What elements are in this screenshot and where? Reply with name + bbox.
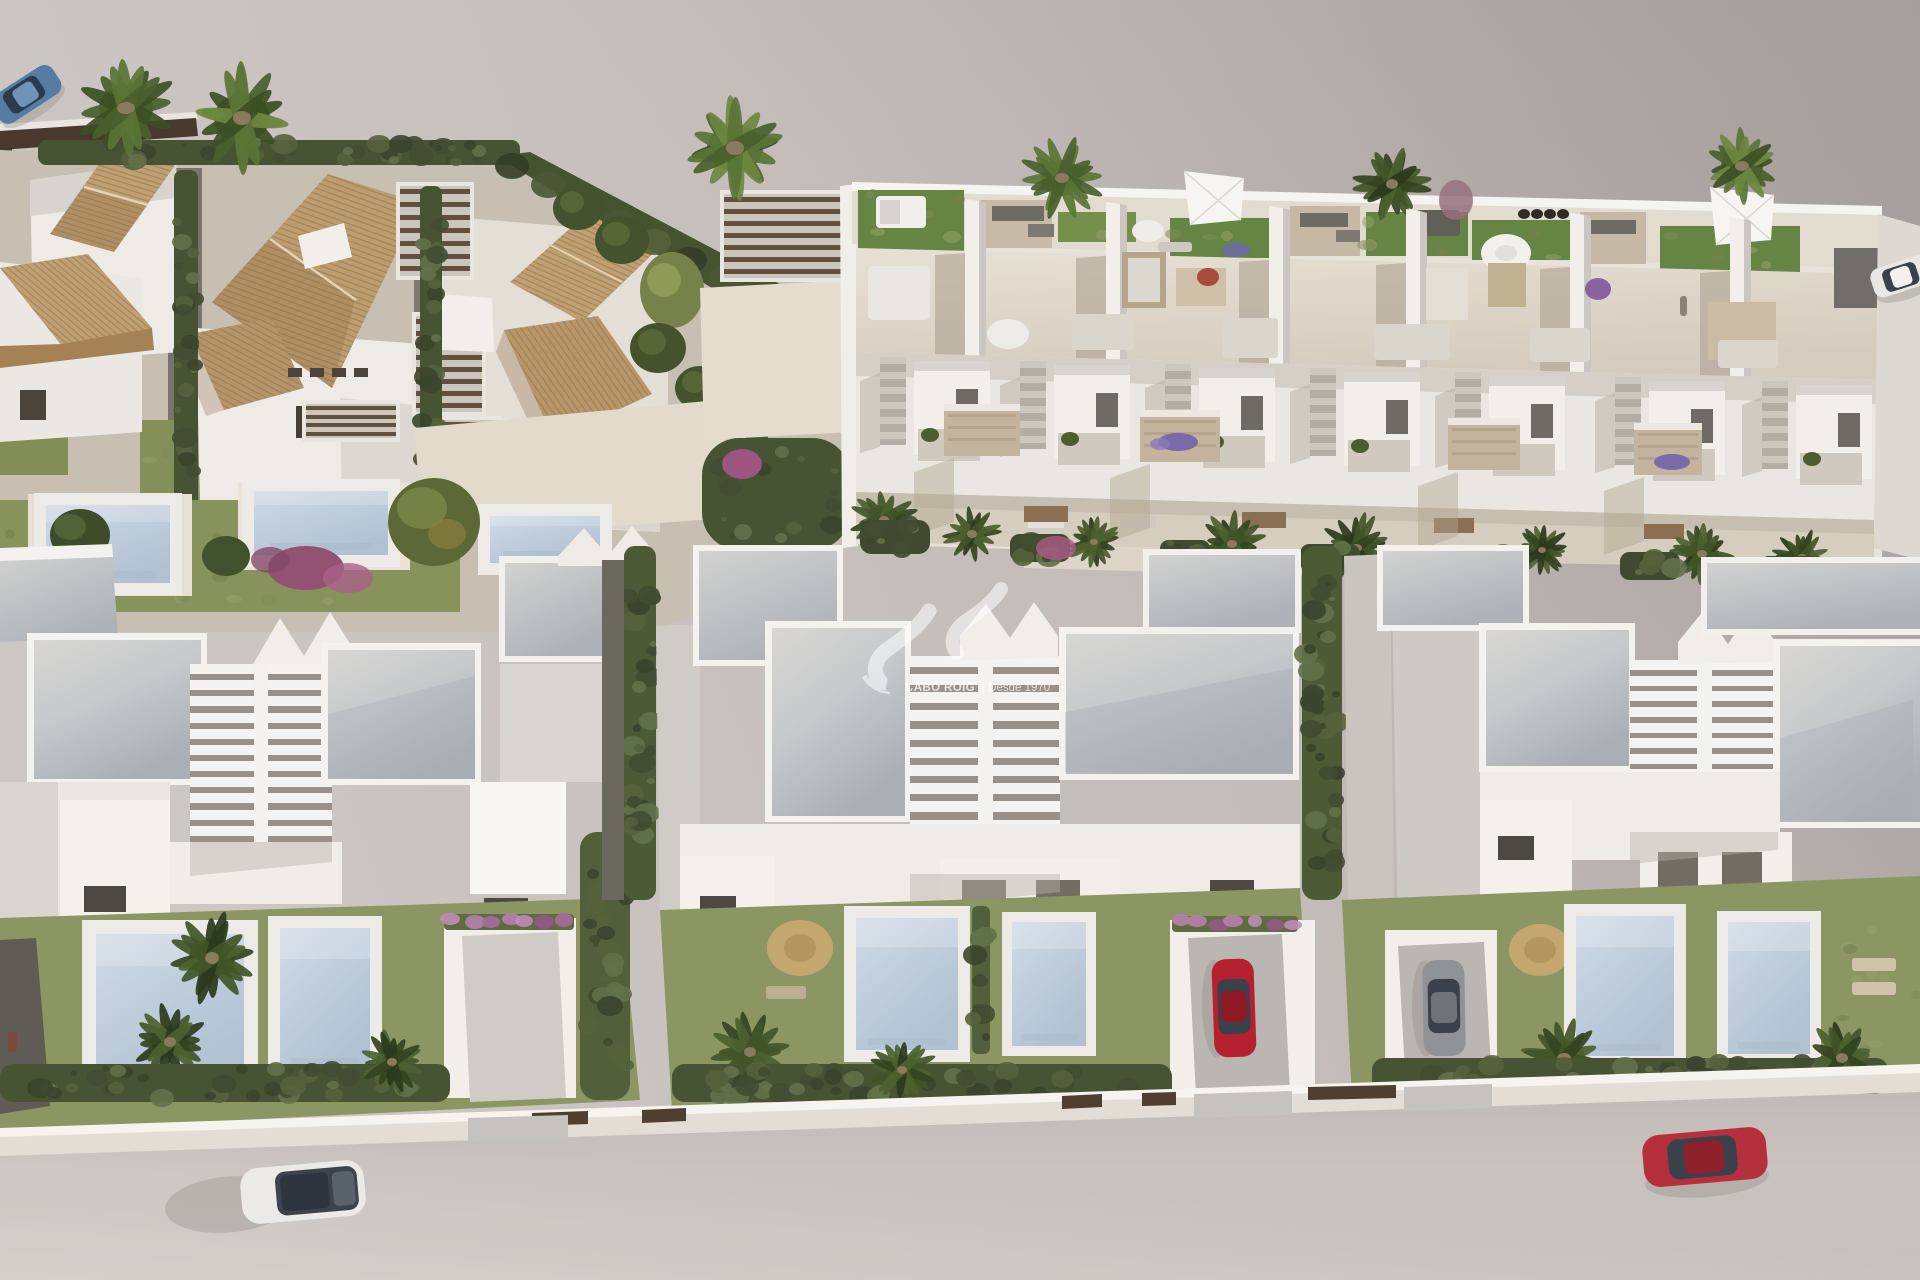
svg-text:CABO ROIG: CABO ROIG bbox=[905, 682, 975, 694]
svg-text:| Desde 1970: | Desde 1970 bbox=[982, 682, 1050, 694]
